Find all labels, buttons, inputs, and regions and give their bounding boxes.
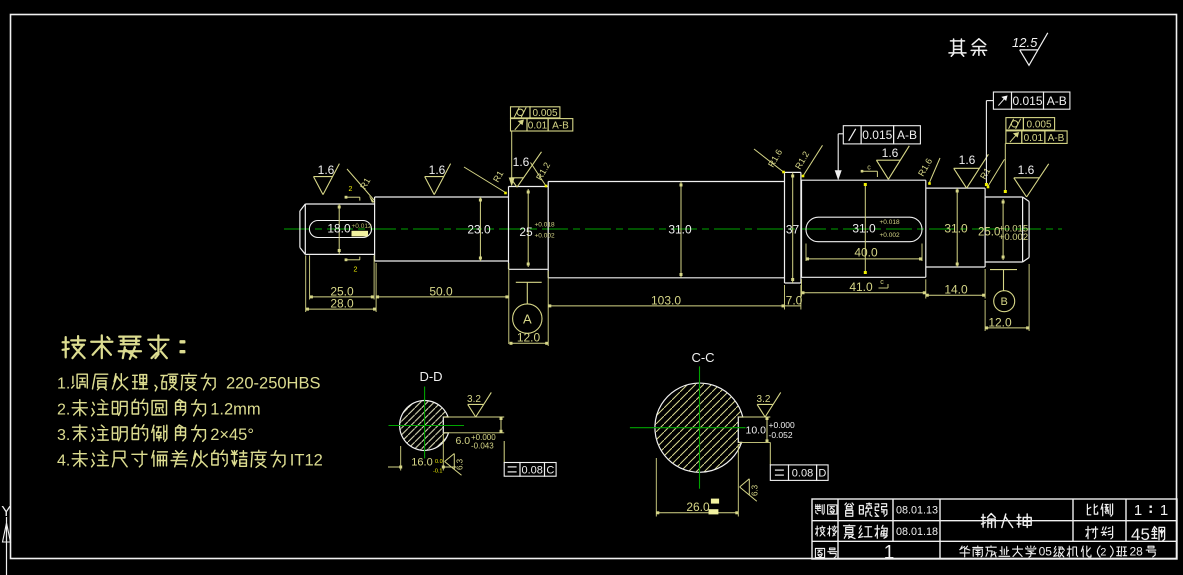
svg-text:A-B: A-B	[897, 128, 917, 142]
svg-text:1: 1	[884, 543, 895, 564]
svg-text:1.6: 1.6	[429, 163, 446, 177]
svg-text:25.0: 25.0	[978, 227, 1000, 239]
svg-text:0.08: 0.08	[521, 464, 542, 476]
svg-text:31.0: 31.0	[852, 221, 876, 235]
svg-text:+0.000: +0.000	[769, 420, 796, 430]
svg-text:10.0: 10.0	[746, 425, 767, 437]
svg-text:+0.002: +0.002	[880, 232, 900, 239]
svg-text:31.0: 31.0	[668, 222, 692, 236]
svg-text:0.005: 0.005	[532, 108, 557, 119]
svg-text:3.2: 3.2	[757, 394, 771, 405]
svg-text:6.3: 6.3	[456, 458, 465, 470]
svg-text:-0.052: -0.052	[769, 430, 793, 440]
svg-text:A-B: A-B	[552, 120, 569, 131]
svg-text:4.: 4.	[57, 453, 70, 470]
svg-text:28.0: 28.0	[330, 297, 354, 311]
svg-text:18.0: 18.0	[327, 222, 351, 236]
svg-text:1.6: 1.6	[882, 146, 899, 160]
svg-text:Y: Y	[1, 503, 11, 520]
svg-text:1.6: 1.6	[513, 155, 530, 169]
svg-text:0.015: 0.015	[862, 128, 892, 142]
svg-text:26.0: 26.0	[686, 500, 710, 514]
svg-text:25: 25	[519, 225, 533, 239]
svg-text:220-250HBS: 220-250HBS	[226, 375, 320, 393]
svg-text:23.0: 23.0	[467, 222, 491, 236]
svg-text:0.01: 0.01	[1024, 133, 1044, 144]
svg-text:C: C	[546, 464, 554, 476]
svg-text:41.0: 41.0	[849, 280, 873, 294]
svg-text:A-B: A-B	[1048, 133, 1065, 144]
svg-text:B: B	[1001, 296, 1008, 308]
svg-text:-0.043: -0.043	[471, 442, 494, 451]
svg-text:IT12: IT12	[290, 452, 323, 470]
svg-text:1.6: 1.6	[1018, 163, 1035, 177]
svg-text:+0.018: +0.018	[535, 222, 555, 229]
svg-text:D: D	[818, 468, 826, 480]
svg-text:C-C: C-C	[691, 350, 714, 365]
svg-text:1.2mm: 1.2mm	[210, 401, 260, 419]
svg-text:37: 37	[786, 222, 800, 236]
svg-text:A-B: A-B	[1047, 94, 1067, 108]
svg-text:0.005: 0.005	[1026, 119, 1051, 130]
svg-text:14.0: 14.0	[944, 283, 968, 297]
svg-text:6.0: 6.0	[456, 435, 471, 447]
svg-text:08.01.13: 08.01.13	[896, 505, 938, 517]
svg-text:40.0: 40.0	[854, 246, 878, 260]
svg-text:+0.002: +0.002	[535, 233, 555, 240]
svg-text:1.: 1.	[57, 376, 70, 393]
svg-text:103.0: 103.0	[651, 293, 681, 307]
svg-text:08.01.18: 08.01.18	[896, 526, 938, 538]
svg-text:1.6: 1.6	[959, 153, 976, 167]
svg-text:2: 2	[1100, 547, 1106, 559]
svg-text:+0.018: +0.018	[880, 219, 900, 226]
svg-text:50.0: 50.0	[429, 284, 453, 298]
svg-text:0.01: 0.01	[528, 120, 548, 131]
svg-text:12.0: 12.0	[988, 315, 1012, 329]
svg-text:45: 45	[1131, 525, 1150, 544]
svg-text:2.: 2.	[57, 402, 70, 419]
svg-text:0.015: 0.015	[1012, 94, 1042, 108]
svg-text:c: c	[880, 279, 884, 286]
svg-text:D-D: D-D	[419, 369, 442, 384]
svg-text:+0.002: +0.002	[999, 232, 1028, 243]
svg-text:0.08: 0.08	[792, 468, 813, 480]
svg-text:16.0: 16.0	[411, 456, 432, 468]
svg-text:12.5: 12.5	[1012, 35, 1038, 50]
svg-text:2: 2	[354, 267, 358, 274]
svg-text:1: 1	[1160, 502, 1168, 519]
svg-text:05: 05	[1039, 545, 1053, 559]
svg-text:6.3: 6.3	[751, 484, 760, 496]
svg-text:3.2: 3.2	[467, 394, 481, 405]
svg-text:28: 28	[1130, 545, 1144, 559]
svg-text:-0.1: -0.1	[433, 469, 442, 475]
svg-text:31.0: 31.0	[944, 221, 968, 235]
svg-text:1: 1	[1134, 502, 1142, 519]
svg-text:7.0: 7.0	[786, 293, 803, 307]
svg-text:+0.012: +0.012	[352, 223, 372, 230]
svg-text:1.6: 1.6	[318, 163, 335, 177]
svg-text:c: c	[867, 165, 871, 172]
svg-text:2×45°: 2×45°	[210, 426, 254, 444]
svg-text:3.: 3.	[57, 427, 70, 444]
svg-text:2: 2	[349, 186, 353, 193]
svg-text:A: A	[523, 312, 532, 327]
svg-text:0.0: 0.0	[435, 459, 443, 465]
